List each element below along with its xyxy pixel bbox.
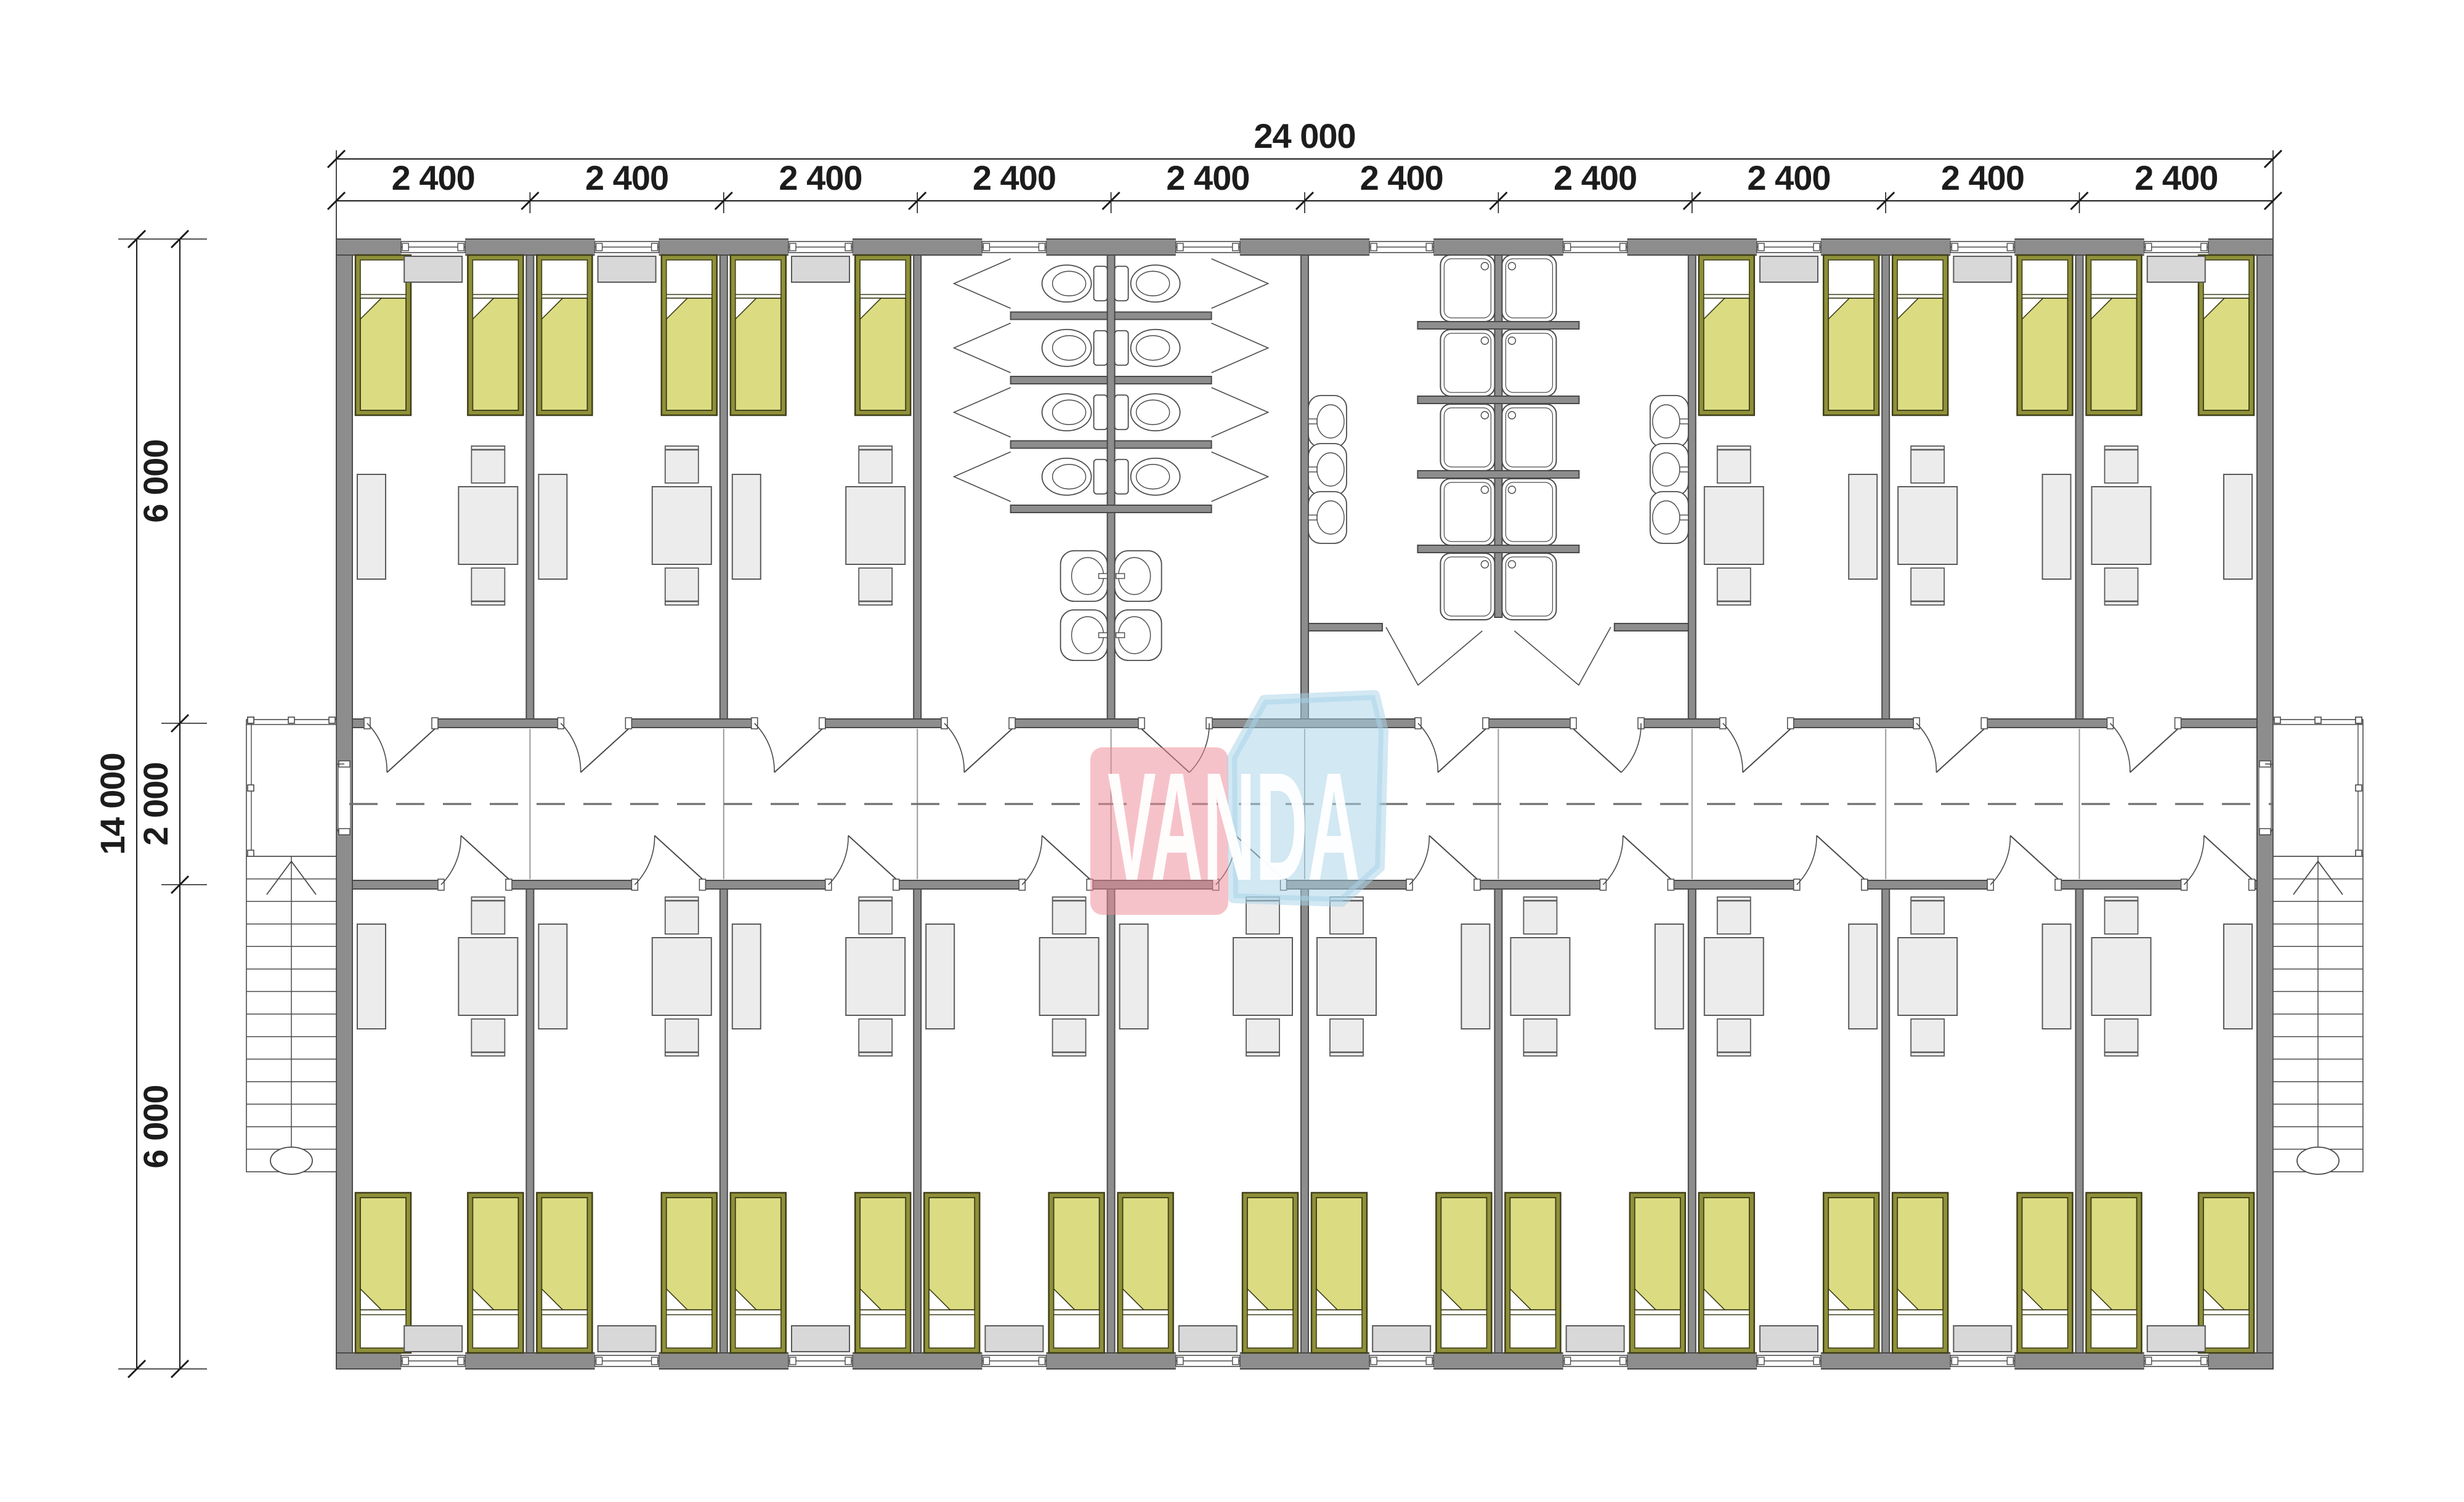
bed-blanket [472,1198,518,1310]
bed-blanket [1897,298,1943,410]
railing-post [248,717,254,723]
bed-blanket [1828,1198,1874,1310]
sink-tap [1680,515,1688,520]
door-swing-arc [1022,835,1042,885]
door-opening [2110,718,2178,729]
door-opening [1916,718,1984,729]
door-jamb [2055,879,2061,890]
door-jamb [506,879,512,890]
window-jamb [2201,1357,2207,1365]
dim-module-width-label: 2 400 [1554,158,1637,197]
toilet-cistern [1094,266,1108,301]
desk [2043,924,2071,1029]
door-jamb [339,829,350,835]
desk [538,474,567,579]
dim-module-width-label: 2 400 [585,158,668,197]
bed-blanket [1897,1198,1943,1310]
dim-band-top-label: 6 000 [136,439,175,522]
bed-blanket [1123,1198,1169,1310]
door-leaf [655,835,703,879]
chair [1911,446,1944,483]
shower-vestibule-wall [1308,623,1382,631]
door-jamb [1788,718,1794,729]
table [1233,938,1292,1015]
window-jamb [1426,243,1432,251]
bed-blanket [1635,1198,1680,1310]
wardrobe-cabinet [1953,1326,2011,1352]
bed-pillow [472,1315,518,1348]
door-opening [2184,879,2252,890]
door-jamb [1862,879,1868,890]
sink-tap [1116,574,1125,578]
toilet-bowl [1131,330,1180,367]
bed-pillow [1897,260,1943,294]
door-swing-arc [1621,723,1641,773]
sink-tap [1308,515,1317,520]
dim-module-width-label: 2 400 [779,158,862,197]
bed-pillow [1123,1315,1169,1348]
door-swing-arc [1916,723,1936,773]
railing-post [2356,785,2362,791]
wardrobe-cabinet [1760,1326,1818,1352]
shower-drain [1481,561,1488,568]
wardrobe-cabinet [598,256,656,282]
chair [665,897,699,934]
toilet-bowl [1042,265,1092,302]
toilet-bowl [1042,458,1092,495]
door-jamb [1668,879,1674,890]
door-leaf [1623,835,1671,879]
door-leaf [848,835,896,879]
window-jamb [790,243,796,251]
toilet-bowl [1131,394,1180,431]
bed-pillow [2203,260,2249,294]
bed-pillow [1247,1315,1293,1348]
partition-wall-top-band [914,255,921,719]
door-opening [1141,718,1209,729]
door-jamb [2249,879,2255,890]
wc-stall-door [954,388,1011,437]
window-jamb [1371,1357,1377,1365]
bed-pillow [929,1315,975,1348]
window-jamb [1620,243,1626,251]
bed-blanket [929,1198,975,1310]
wardrobe-cabinet [404,256,462,282]
chair [471,1019,505,1056]
door-jamb [1483,718,1489,729]
railing-post [2274,717,2280,723]
staircase-left [246,717,336,1174]
door-opening [1418,718,1486,729]
bed-pillow [472,260,518,294]
bed-pillow [2022,260,2068,294]
dim-module-width-label: 2 400 [1360,158,1443,197]
door-jamb [1570,718,1576,729]
chair [1717,568,1751,605]
door-leaf [1743,729,1791,773]
chair [1523,897,1557,934]
window-jamb [2007,1357,2013,1365]
toilet-cistern [1115,395,1129,429]
bed-blanket [736,298,781,410]
door-jamb [2259,829,2271,835]
railing-post [2356,717,2362,723]
table [1040,938,1099,1015]
bed-blanket [360,298,406,410]
chair [1523,1019,1557,1056]
window-jamb [1233,1357,1239,1365]
sink-tap [1308,467,1317,472]
wc-stall-door [1212,388,1268,437]
shower-vestibule-wall [1615,623,1688,631]
desk [1120,924,1148,1029]
desk [1849,474,1877,579]
door-jamb [2175,718,2181,729]
sink-tap [1116,633,1125,638]
door-swing-arc [1723,723,1743,773]
wc-stall-partition [1011,441,1108,449]
window-jamb [402,243,408,251]
dim-total-width-label: 24 000 [1254,116,1355,155]
chair [665,1019,699,1056]
door-opening [1603,879,1671,890]
door-opening [944,718,1012,729]
door-leaf [2010,835,2058,879]
railing-post [248,850,254,856]
door-swing-arc [1990,835,2010,885]
toilet-cistern [1115,266,1129,301]
bed-blanket [667,1198,712,1310]
window-jamb [1177,243,1183,251]
window-jamb [2007,243,2013,251]
toilet-bowl [1042,394,1092,431]
door-opening [561,718,628,729]
wc-stall-door [1212,452,1268,502]
door-swing-arc [634,835,654,885]
bed-pillow [1897,1315,1943,1348]
window-jamb [845,243,851,251]
chair [665,446,699,483]
window-jamb [596,1357,602,1365]
window-jamb [402,1357,408,1365]
door-jamb [1474,879,1480,890]
chair [2105,897,2138,934]
wardrobe-cabinet [2147,256,2205,282]
bed-pillow [1510,1315,1555,1348]
wc-stall-door [1212,259,1268,309]
window-jamb [1951,243,1958,251]
bed-pillow [2091,1315,2137,1348]
bed-blanket [1704,1198,1749,1310]
wc-spine-wall [1108,255,1115,719]
wc-stall-door [954,323,1011,373]
window-jamb [1177,1357,1183,1365]
door-swing-arc [829,835,848,885]
window-jamb [2201,243,2207,251]
chair [665,568,699,605]
wardrobe-cabinet [1372,1326,1430,1352]
chair [1717,446,1751,483]
desk [732,474,761,579]
window-jamb [596,243,602,251]
chair [1053,897,1086,934]
shower-partition [1417,545,1579,553]
shower-drain [1508,337,1515,344]
door-swing-arc [1603,835,1623,885]
partition-wall-bottom-band [1494,889,1502,1353]
partition-wall-bottom-band [2076,889,2083,1353]
shower-drain [1508,486,1515,493]
dim-module-width-label: 2 400 [1747,158,1830,197]
table [1898,938,1957,1015]
floor-plan-drawing: 24 0002 4002 4002 4002 4002 4002 4002 40… [0,0,2464,1502]
bed-blanket [1316,1198,1362,1310]
bed-pillow [1828,260,1874,294]
table [846,938,905,1015]
chair [471,897,505,934]
chair [1717,1019,1751,1056]
door-opening [1797,879,1865,890]
door-jamb [699,879,705,890]
door-opening [2259,764,2271,832]
chair [1246,1019,1279,1056]
chair [1717,897,1751,934]
door-jamb [1009,718,1015,729]
door-swing-arc [561,723,580,773]
floor-plan-page: 24 0002 4002 4002 4002 4002 4002 4002 40… [0,0,2464,1502]
watermark-vanda-text: VANDA [1108,741,1360,912]
window-jamb [983,243,989,251]
stair-base-ellipse [270,1147,312,1174]
bed-pillow [2091,260,2137,294]
sink-tap [1099,633,1108,638]
bed-blanket [2022,298,2068,410]
door-jamb [432,718,438,729]
dim-module-width-label: 2 400 [392,158,475,197]
window-jamb [1565,243,1571,251]
door-leaf [461,835,509,879]
table [2092,487,2151,564]
door-opening [755,718,822,729]
window-jamb [1233,243,1239,251]
railing-post [248,785,254,791]
bed-pillow [1316,1315,1362,1348]
table [1510,938,1570,1015]
door-opening [367,718,435,729]
wc-stall-partition [1115,441,1212,449]
toilet-cistern [1094,331,1108,365]
partition-wall-bottom-band [1301,889,1308,1353]
bed-blanket [667,298,712,410]
door-swing-arc [944,723,964,773]
window-jamb [1039,243,1045,251]
table [846,487,905,564]
wc-stall-door [954,452,1011,502]
bed-pillow [860,1315,906,1348]
door-jamb [625,718,631,729]
railing-post [2356,850,2362,856]
door-leaf [387,729,435,773]
window-jamb [1620,1357,1626,1365]
sink-tap [1680,467,1688,472]
door-opening [441,879,509,890]
wc-stall-partition [1011,376,1108,384]
dim-module-width-label: 2 400 [1166,158,1249,197]
desk [1461,924,1489,1029]
wardrobe-cabinet [792,1326,849,1352]
window-jamb [1758,1357,1764,1365]
chair [2105,568,2138,605]
shower-drain [1481,412,1488,419]
bed-blanket [541,298,587,410]
wardrobe-cabinet [1760,256,1818,282]
window-jamb [652,1357,658,1365]
railing-post [2315,717,2321,723]
sink-tap [1099,574,1108,578]
door-swing-arc [755,723,774,773]
wardrobe-cabinet [598,1326,656,1352]
shower-drain [1508,412,1515,419]
bed-pillow [860,260,906,294]
window-jamb [458,243,464,251]
stair-landing [2273,720,2363,856]
dim-module-width-label: 2 400 [973,158,1056,197]
bed-blanket [2091,1198,2137,1310]
shower-drain [1508,262,1515,270]
partition-wall-bottom-band [1882,889,1889,1353]
wc-stall-back-wall [1011,505,1212,513]
wardrobe-cabinet [985,1326,1043,1352]
bed-pillow [1635,1315,1680,1348]
dim-total-height-label: 14 000 [93,753,132,855]
staircase-right [2273,717,2363,1174]
desk [357,924,386,1029]
sink-tap [1308,419,1317,424]
bed-pillow [736,1315,781,1348]
bed-pillow [360,260,406,294]
bed-pillow [360,1315,406,1348]
partition-wall-top-band [720,255,727,719]
chair [859,1019,892,1056]
door-opening [339,764,350,832]
table [652,938,711,1015]
bed-pillow [2203,1315,2249,1348]
door-leaf [1936,729,1984,773]
bed-pillow [541,260,587,294]
door-jamb [893,879,899,890]
stair-landing [246,720,336,856]
bed-blanket [1828,298,1874,410]
door-leaf [2130,729,2178,773]
door-leaf [2204,835,2252,879]
toilet-cistern [1115,460,1129,494]
chair [1330,1019,1363,1056]
shower-partition [1417,396,1579,404]
window-jamb [790,1357,796,1365]
partition-wall-bottom-band [914,889,921,1353]
wardrobe-cabinet [404,1326,462,1352]
wc-stall-partition [1115,376,1212,384]
desk [538,924,567,1029]
bed-pillow [1704,1315,1749,1348]
table [2092,938,2151,1015]
bed-blanket [472,298,518,410]
partition-wall-bottom-band [526,889,533,1353]
shower-spine-wall [1494,255,1502,617]
door-opening [634,879,702,890]
partition-wall-top-band [1882,255,1889,719]
bed-blanket [1704,298,1749,410]
toilet-bowl [1131,265,1180,302]
stair-base-ellipse [2297,1147,2339,1174]
shower-partition [1417,322,1579,329]
window-jamb [1039,1357,1045,1365]
shower-vestibule-door [1386,627,1482,685]
door-leaf [774,729,822,773]
door-swing-arc [367,723,387,773]
partition-wall-top-band [1301,255,1308,719]
bed-blanket [1510,1198,1555,1310]
window-jamb [1371,243,1377,251]
table [652,487,711,564]
desk [2043,474,2071,579]
table [1704,487,1764,564]
toilet-cistern [1094,395,1108,429]
bed-pillow [667,1315,712,1348]
door-leaf [1573,729,1621,773]
bed-pillow [1441,1315,1486,1348]
chair [1911,568,1944,605]
shower-drain [1481,262,1488,270]
table [458,938,517,1015]
window-jamb [983,1357,989,1365]
desk [732,924,761,1029]
bed-pillow [1054,1315,1100,1348]
door-opening [1990,879,2058,890]
chair [1911,897,1944,934]
door-leaf [581,729,629,773]
door-swing-arc [1409,835,1429,885]
desk [1849,924,1877,1029]
toilet-cistern [1115,331,1129,365]
desk [2224,924,2252,1029]
table [458,487,517,564]
bed-pillow [736,260,781,294]
shower-vestibule-door [1514,627,1610,685]
bed-blanket [2091,298,2137,410]
chair [471,446,505,483]
toilet-bowl [1131,458,1180,495]
door-swing-arc [1797,835,1817,885]
window-jamb [458,1357,464,1365]
door-opening [1409,879,1477,890]
wc-stall-partition [1011,312,1108,320]
window-jamb [1758,243,1764,251]
bed-blanket [1247,1198,1293,1310]
door-swing-arc [441,835,461,885]
bed-pillow [1704,260,1749,294]
window-jamb [1565,1357,1571,1365]
bed-blanket [860,1198,906,1310]
wc-stall-door [1212,323,1268,373]
door-leaf [964,729,1012,773]
door-jamb [1138,718,1145,729]
bed-blanket [1441,1198,1486,1310]
bed-blanket [860,298,906,410]
bed-pillow [667,260,712,294]
door-leaf [1817,835,1865,879]
window-jamb [1951,1357,1958,1365]
